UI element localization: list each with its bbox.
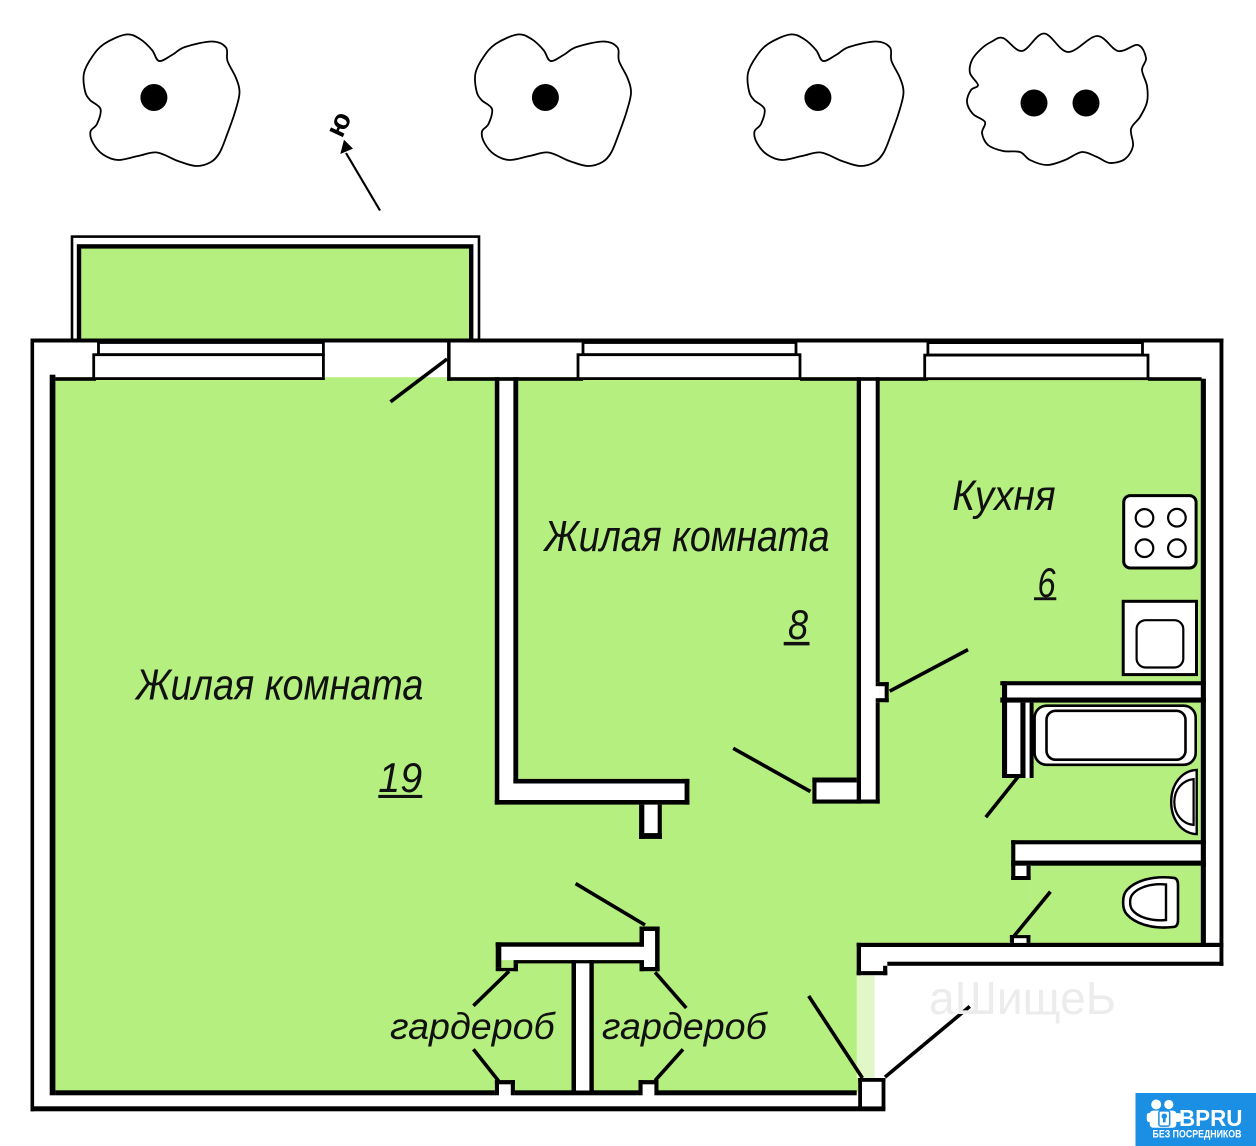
svg-text:8: 8 bbox=[788, 601, 809, 648]
svg-text:19: 19 bbox=[378, 754, 422, 801]
svg-text:BPRU: BPRU bbox=[1179, 1105, 1243, 1131]
svg-text:Жилая комната: Жилая комната bbox=[543, 512, 830, 561]
svg-text:БЕЗ ПОСРЕДНИКОВ: БЕЗ ПОСРЕДНИКОВ bbox=[1153, 1129, 1242, 1141]
svg-text:гардероб: гардероб bbox=[390, 1006, 556, 1047]
svg-text:аШищеЬ: аШищеЬ bbox=[929, 972, 1116, 1024]
svg-text:Кухня: Кухня bbox=[952, 473, 1055, 520]
svg-text:гардероб: гардероб bbox=[602, 1006, 768, 1047]
svg-text:Жилая комната: Жилая комната bbox=[134, 661, 423, 710]
